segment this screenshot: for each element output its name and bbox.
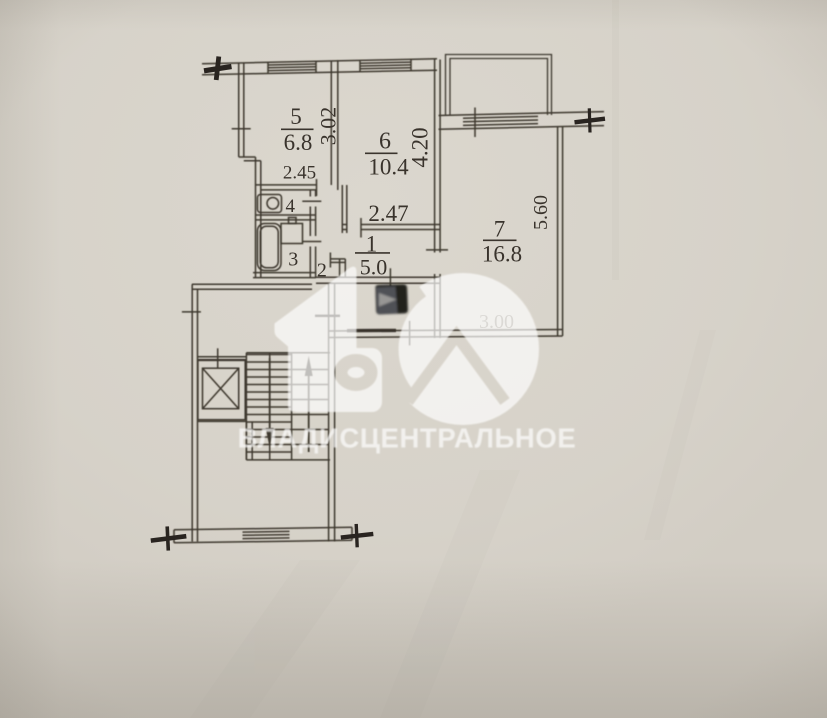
svg-text:3.02: 3.02	[316, 107, 341, 146]
svg-text:10.4: 10.4	[368, 155, 409, 180]
svg-text:ВЛАДИСЦЕНТРАЛЬНОЕ: ВЛАДИСЦЕНТРАЛЬНОЕ	[238, 423, 577, 454]
svg-text:3: 3	[288, 249, 298, 271]
svg-text:4: 4	[286, 196, 296, 217]
svg-text:5.60: 5.60	[530, 195, 552, 230]
svg-text:4.20: 4.20	[408, 127, 433, 167]
svg-text:5.0: 5.0	[360, 254, 388, 279]
svg-text:6: 6	[379, 128, 391, 154]
svg-text:2.47: 2.47	[368, 201, 408, 226]
svg-text:5: 5	[290, 104, 302, 129]
svg-text:7: 7	[494, 217, 506, 242]
svg-text:2.45: 2.45	[283, 163, 316, 184]
svg-text:6.8: 6.8	[284, 130, 313, 155]
svg-text:2: 2	[317, 260, 327, 282]
svg-text:16.8: 16.8	[482, 242, 522, 267]
